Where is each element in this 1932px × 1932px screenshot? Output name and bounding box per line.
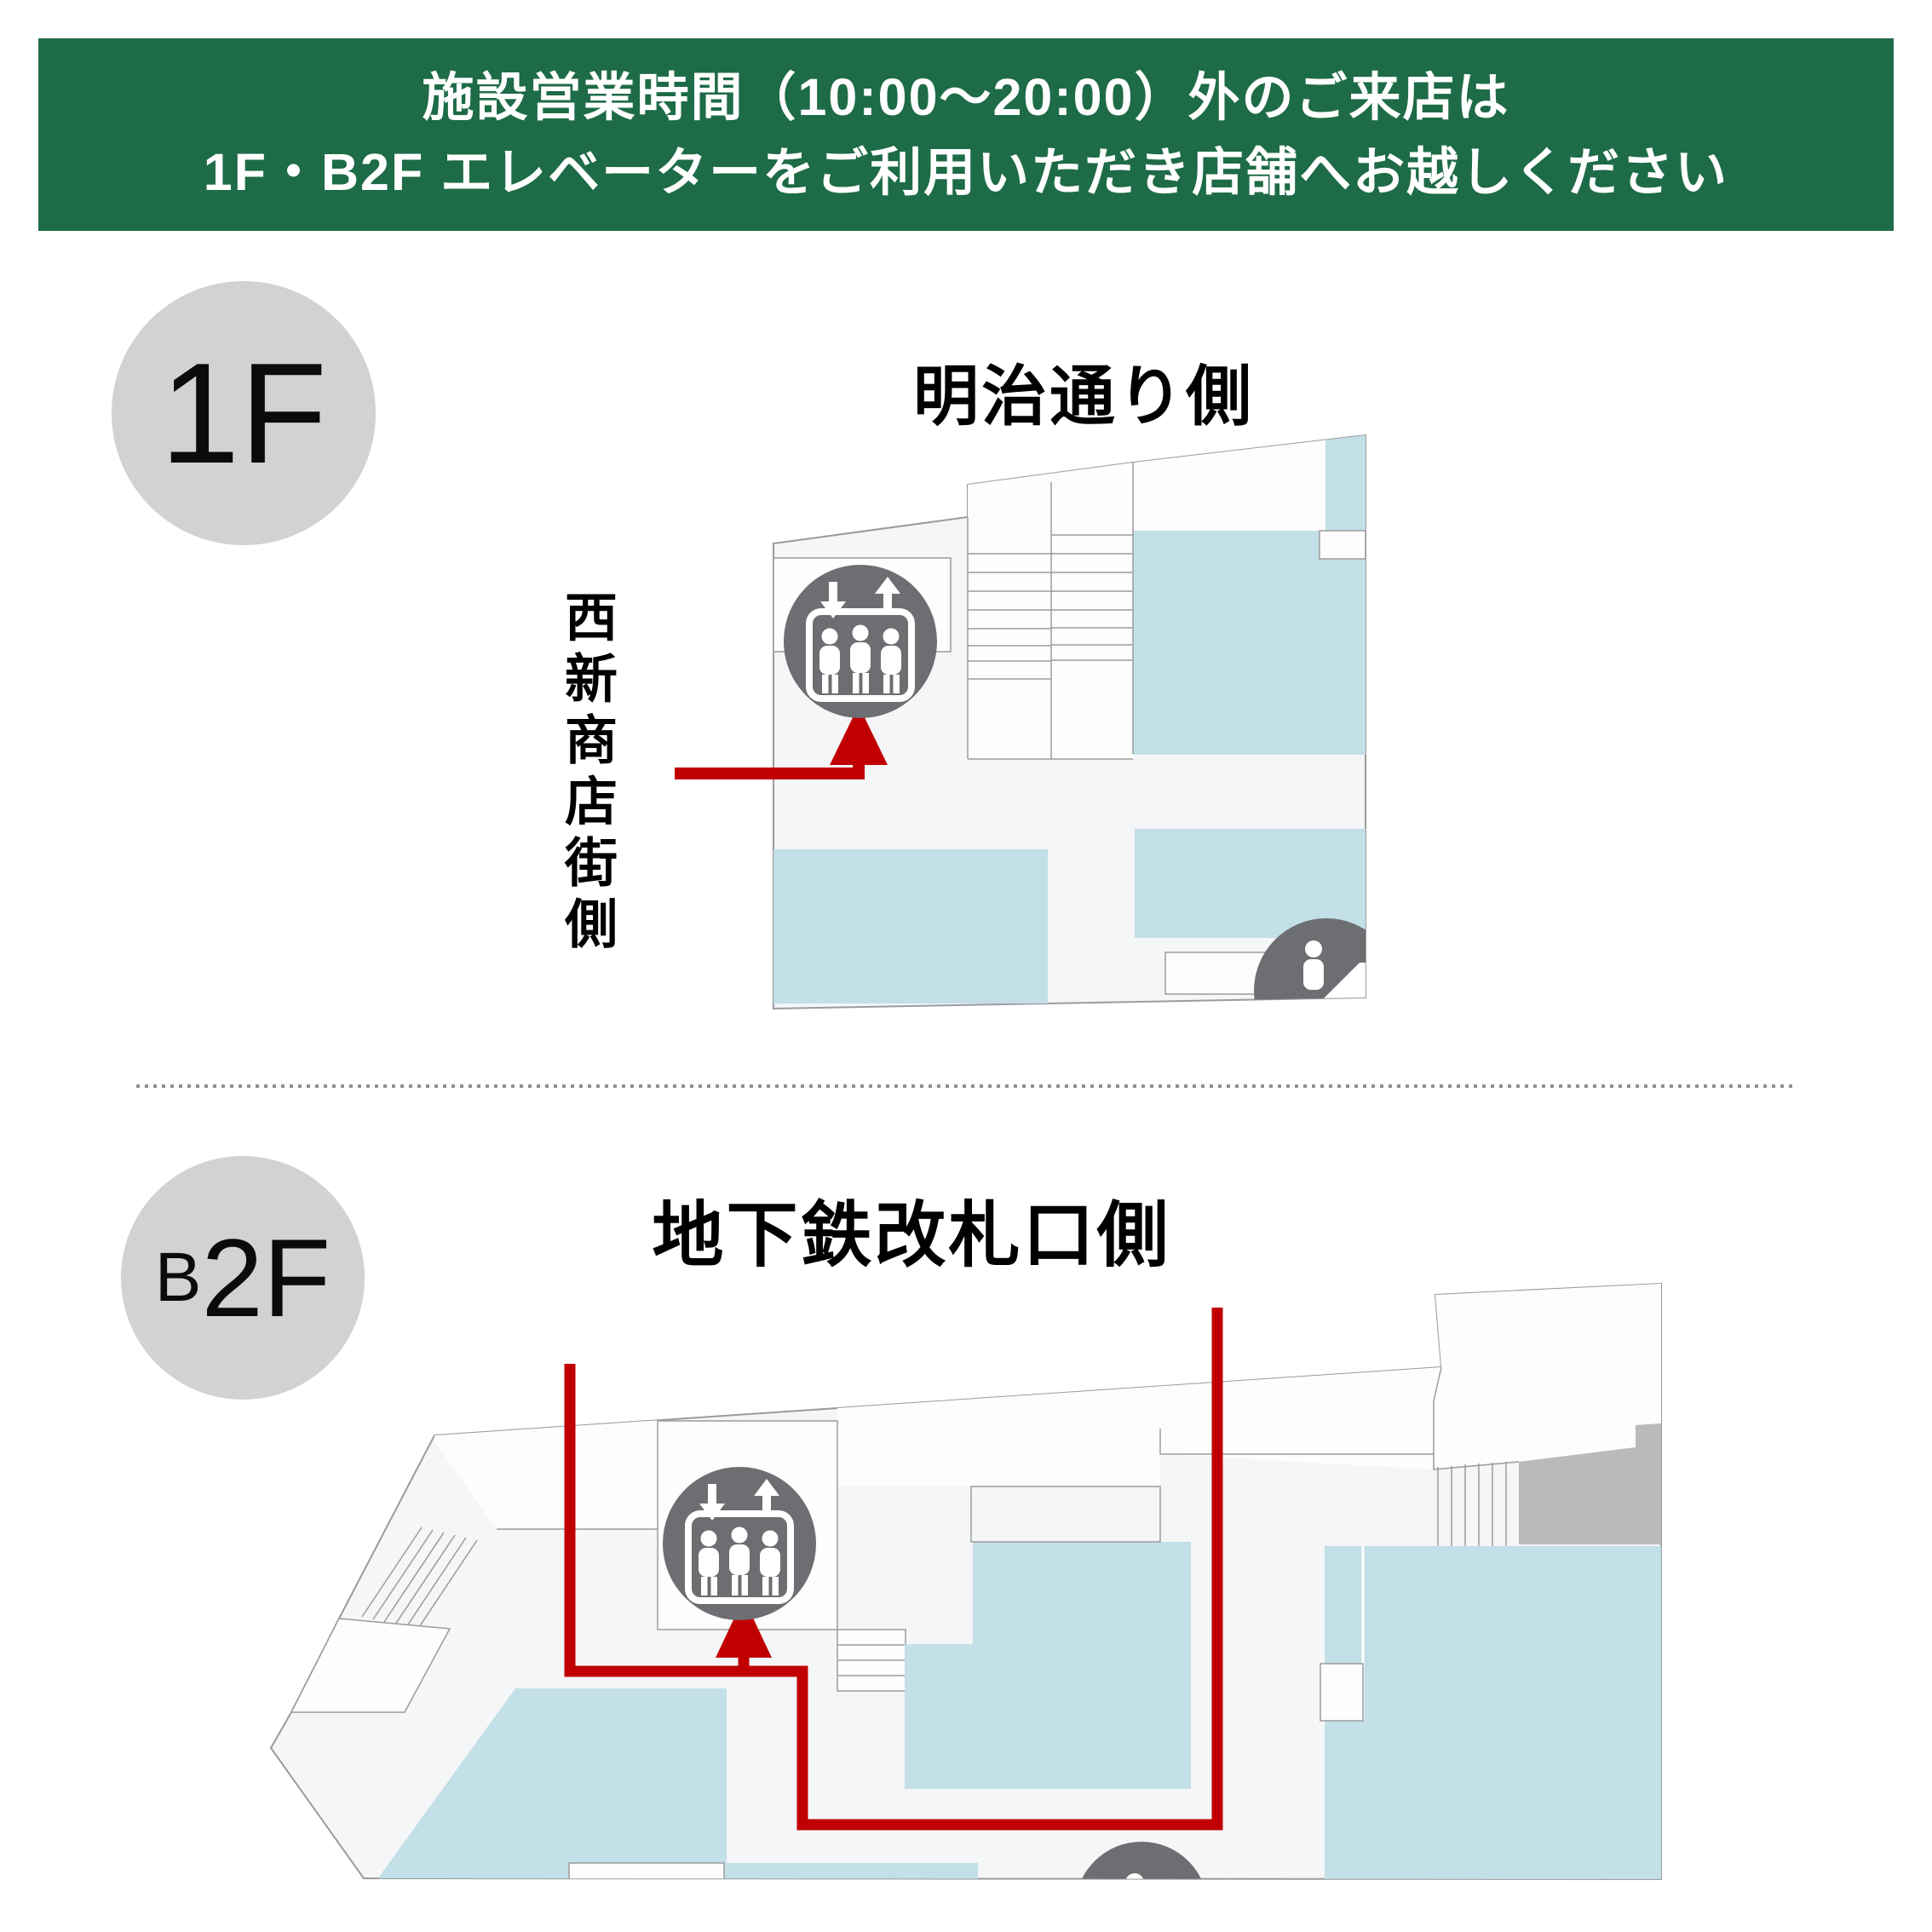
elevator-icon: [663, 1467, 816, 1620]
floor-badge-1f-label: 1F: [160, 331, 327, 496]
banner-line-1: 施設営業時間（10:00～20:00）外のご来店は: [422, 60, 1509, 135]
floor-1f-map: [664, 426, 1380, 1014]
banner-line-2: 1F・B2F エレベーターをご利用いただき店舗へお越しください: [204, 135, 1728, 210]
stairs-b2f-center: [837, 1630, 906, 1691]
floor-b2f-map: [256, 1278, 1670, 1932]
area-title-1f: 明治通り側: [743, 359, 1424, 435]
area-title-b2f: 地下鉄改札口側: [571, 1194, 1252, 1276]
section-divider: [136, 1084, 1796, 1088]
shop-area: [1325, 1546, 1661, 1879]
flyer-page: 施設営業時間（10:00～20:00）外のご来店は 1F・B2F エレベーターを…: [0, 0, 1932, 1932]
elevator-icon: [784, 565, 937, 718]
shop-area: [1133, 531, 1366, 755]
shop-area: [773, 849, 1048, 1003]
side-label-1f: 西新商店街側: [552, 589, 618, 957]
floor-badge-1f: 1F: [112, 281, 376, 545]
floor-badge-b2f-prefix: B: [155, 1238, 202, 1318]
header-banner: 施設営業時間（10:00～20:00）外のご来店は 1F・B2F エレベーターを…: [38, 38, 1894, 231]
